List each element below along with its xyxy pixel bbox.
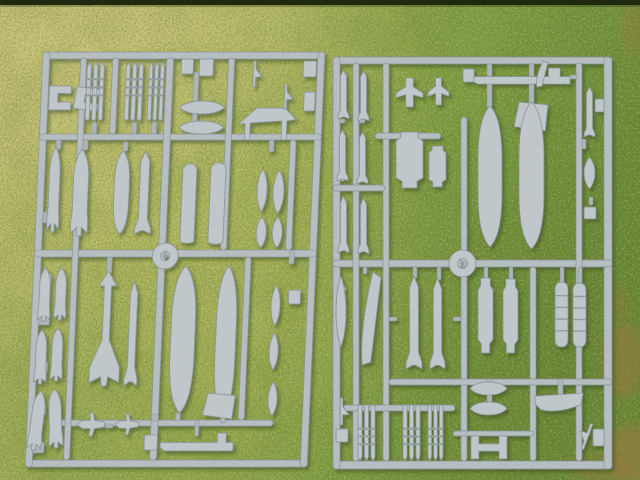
sprue-gate-stub — [363, 267, 367, 274]
sprue-rail — [383, 63, 389, 461]
sprue-gate-stub — [453, 317, 461, 321]
sprue-gate-stub — [269, 140, 275, 152]
sprue-rail — [333, 461, 612, 469]
sprue-gate-stub — [560, 267, 564, 284]
sprue-rail — [333, 185, 385, 191]
sprue-rail — [333, 57, 612, 64]
sprue-gate-stub — [578, 267, 582, 285]
pod-part — [208, 163, 226, 244]
rocket-cluster-part — [85, 62, 104, 120]
finned-pod-part — [555, 282, 568, 347]
small-block-part — [303, 92, 315, 111]
laser-guided-bomb-part — [503, 279, 518, 353]
finned-pod-part — [573, 283, 586, 347]
sprue-rail — [461, 117, 467, 267]
scene-svg — [0, 0, 640, 480]
laser-guided-bomb-part — [478, 278, 493, 353]
rocket-cluster-part — [124, 62, 143, 120]
rocket-cluster-part — [428, 405, 443, 461]
small-block-part — [595, 99, 604, 112]
ring-part — [449, 250, 476, 277]
laser-guided-bomb-part — [396, 132, 423, 188]
plate-part — [202, 393, 235, 419]
small-block-part — [288, 290, 301, 304]
small-block-part — [144, 435, 158, 450]
sprue-gate-stub — [151, 122, 157, 134]
sprue-gate-stub — [289, 250, 295, 264]
sprue-gate-stub — [582, 139, 586, 149]
sprue-gate-stub — [175, 413, 180, 421]
sprue-gate-stub — [340, 119, 345, 123]
fuel-tank-part — [519, 102, 544, 249]
photo-top-edge-fade — [0, 4, 640, 7]
small-block-part — [593, 429, 604, 446]
sprue-gate-stub — [389, 317, 397, 321]
fairing-part — [470, 402, 507, 415]
fairing-part — [470, 382, 507, 395]
fuel-tank-part — [478, 106, 502, 247]
sprue-gate-stub — [83, 140, 88, 150]
sprue-gate-stub — [105, 424, 113, 428]
small-block-part — [584, 207, 596, 219]
sprue-gate-stub — [151, 414, 158, 421]
sprue-rail — [25, 460, 307, 467]
sprue-rail — [353, 63, 359, 461]
sprue-gate-stub — [558, 379, 563, 395]
laser-guided-bomb-part — [429, 146, 446, 187]
rocket-cluster-part — [147, 62, 164, 120]
rocket-cluster-part — [403, 405, 420, 461]
sprue-gate-stub — [107, 257, 113, 273]
sprue-gate-stub — [131, 122, 137, 134]
rocket-cluster-part — [358, 405, 375, 461]
pod-part — [180, 164, 197, 243]
small-block-part — [463, 69, 474, 82]
sprue-rail — [453, 431, 534, 436]
sprue-gate-stub — [91, 122, 97, 134]
small-block-part — [181, 59, 194, 74]
small-block-part — [199, 59, 214, 76]
sprue-gate-stub — [487, 64, 492, 108]
sprue-gate-stub — [589, 197, 593, 205]
small-block-part — [336, 429, 348, 442]
small-block-part — [303, 61, 317, 77]
photo-model-kit-sprues-on-grass — [0, 0, 640, 480]
sprue-gate-stub — [123, 142, 128, 151]
sprue-gate-stub — [195, 420, 200, 436]
